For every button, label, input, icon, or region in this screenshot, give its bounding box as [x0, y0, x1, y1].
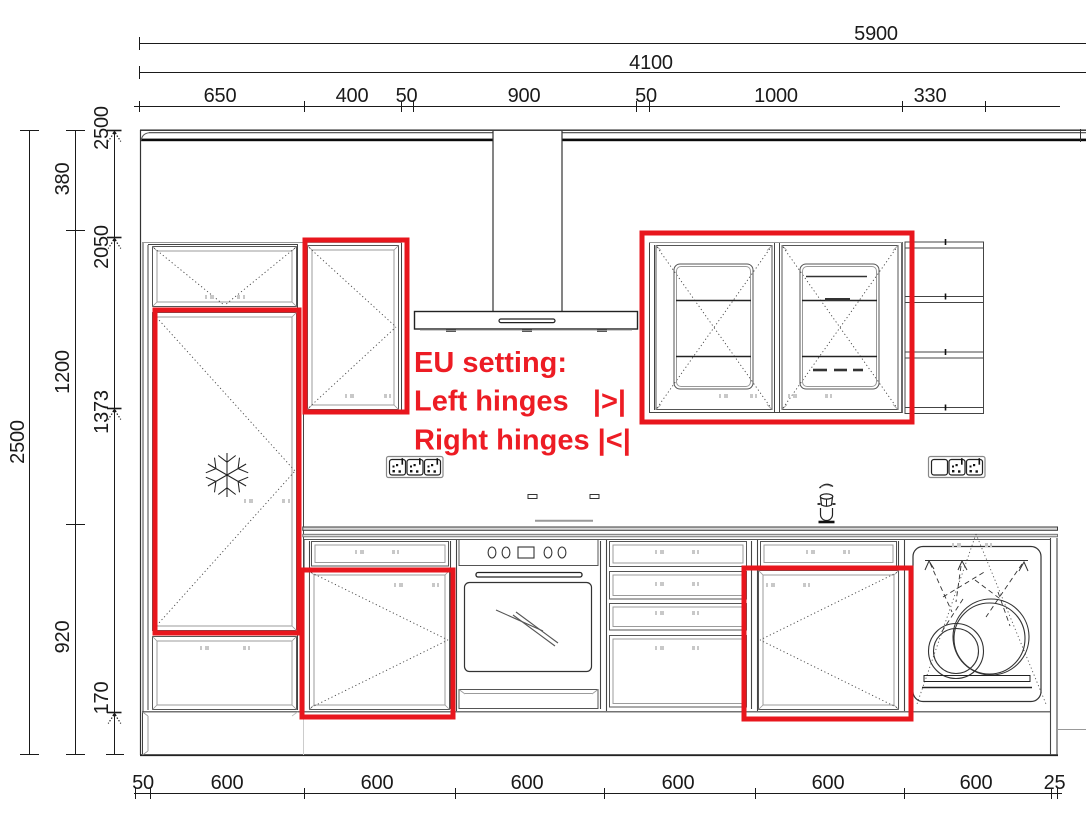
svg-text:600: 600	[511, 772, 544, 794]
svg-text:EU setting:: EU setting:	[414, 347, 567, 379]
svg-text:400: 400	[336, 85, 369, 107]
svg-text:Right hinges |<|: Right hinges |<|	[414, 425, 631, 457]
svg-text:2500: 2500	[7, 420, 29, 464]
svg-text:600: 600	[960, 772, 993, 794]
svg-text:4100: 4100	[629, 52, 673, 74]
svg-text:25: 25	[1044, 772, 1066, 794]
svg-text:330: 330	[914, 85, 947, 107]
svg-text:1000: 1000	[754, 85, 798, 107]
svg-text:1200: 1200	[52, 350, 74, 394]
svg-text:50: 50	[635, 85, 657, 107]
svg-text:650: 650	[204, 85, 237, 107]
svg-text:600: 600	[211, 772, 244, 794]
svg-text:2500: 2500	[91, 106, 113, 150]
svg-text:1373: 1373	[91, 390, 113, 434]
svg-text:600: 600	[662, 772, 695, 794]
svg-text:380: 380	[52, 163, 74, 196]
svg-text:600: 600	[812, 772, 845, 794]
svg-text:2050: 2050	[91, 225, 113, 269]
svg-text:50: 50	[396, 85, 418, 107]
svg-text:Left hinges |>|: Left hinges |>|	[414, 386, 626, 418]
svg-text:170: 170	[91, 682, 113, 715]
svg-text:600: 600	[361, 772, 394, 794]
svg-text:5900: 5900	[854, 23, 898, 45]
svg-text:900: 900	[508, 85, 541, 107]
svg-text:920: 920	[52, 621, 74, 654]
svg-text:50: 50	[132, 772, 154, 794]
